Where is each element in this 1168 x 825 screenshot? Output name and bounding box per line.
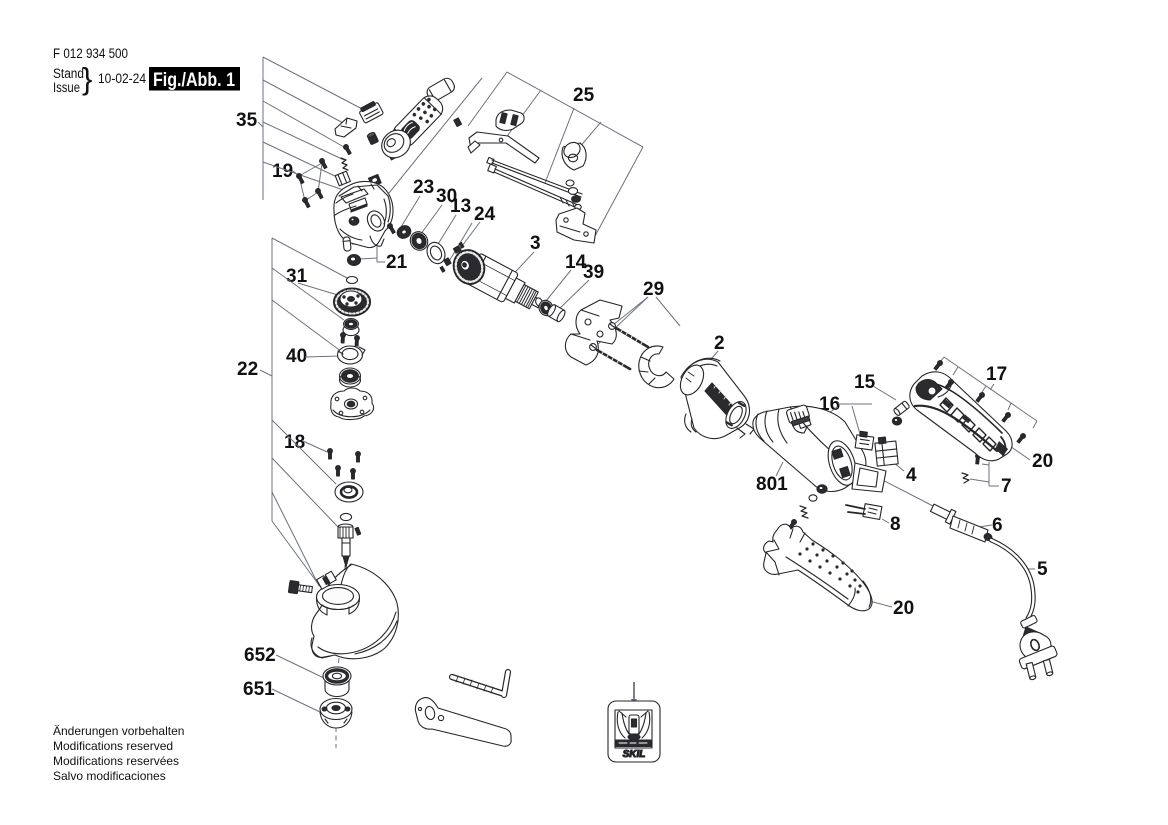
- svg-text:Issue: Issue: [53, 80, 80, 95]
- svg-text:25: 25: [573, 85, 595, 106]
- svg-text:20: 20: [1032, 451, 1053, 472]
- svg-text:Modifications reservées: Modifications reservées: [53, 754, 179, 768]
- svg-text:Fig./Abb. 1: Fig./Abb. 1: [153, 70, 235, 91]
- svg-text:8: 8: [890, 514, 901, 535]
- svg-text:2: 2: [714, 333, 725, 354]
- svg-text:Stand: Stand: [53, 66, 84, 81]
- svg-text:22: 22: [237, 359, 258, 380]
- svg-text:13: 13: [450, 196, 471, 217]
- svg-text:40: 40: [286, 346, 307, 367]
- svg-text:F 012 934 500: F 012 934 500: [53, 46, 128, 61]
- svg-text:15: 15: [854, 372, 876, 393]
- svg-text:3: 3: [530, 233, 541, 254]
- svg-text:7: 7: [1001, 476, 1012, 497]
- svg-text:20: 20: [893, 598, 914, 619]
- svg-text:35: 35: [236, 110, 258, 131]
- svg-text:39: 39: [583, 262, 604, 283]
- svg-text:5: 5: [1037, 559, 1048, 580]
- svg-text:Modifications reserved: Modifications reserved: [53, 739, 173, 753]
- svg-text:801: 801: [756, 474, 788, 495]
- svg-text:651: 651: [243, 679, 275, 700]
- svg-text:24: 24: [474, 204, 496, 225]
- svg-text:}: }: [82, 61, 92, 96]
- svg-text:Salvo modificaciones: Salvo modificaciones: [53, 769, 166, 783]
- svg-text:4: 4: [906, 465, 917, 486]
- svg-text:10-02-24: 10-02-24: [98, 71, 146, 86]
- svg-text:Änderungen vorbehalten: Änderungen vorbehalten: [53, 724, 184, 738]
- svg-text:31: 31: [286, 266, 308, 287]
- svg-text:29: 29: [643, 279, 664, 300]
- svg-text:SKIL: SKIL: [623, 749, 646, 760]
- svg-text:17: 17: [986, 364, 1007, 385]
- svg-text:6: 6: [992, 515, 1003, 536]
- svg-text:652: 652: [244, 645, 276, 666]
- svg-text:23: 23: [413, 177, 434, 198]
- svg-text:21: 21: [386, 252, 408, 273]
